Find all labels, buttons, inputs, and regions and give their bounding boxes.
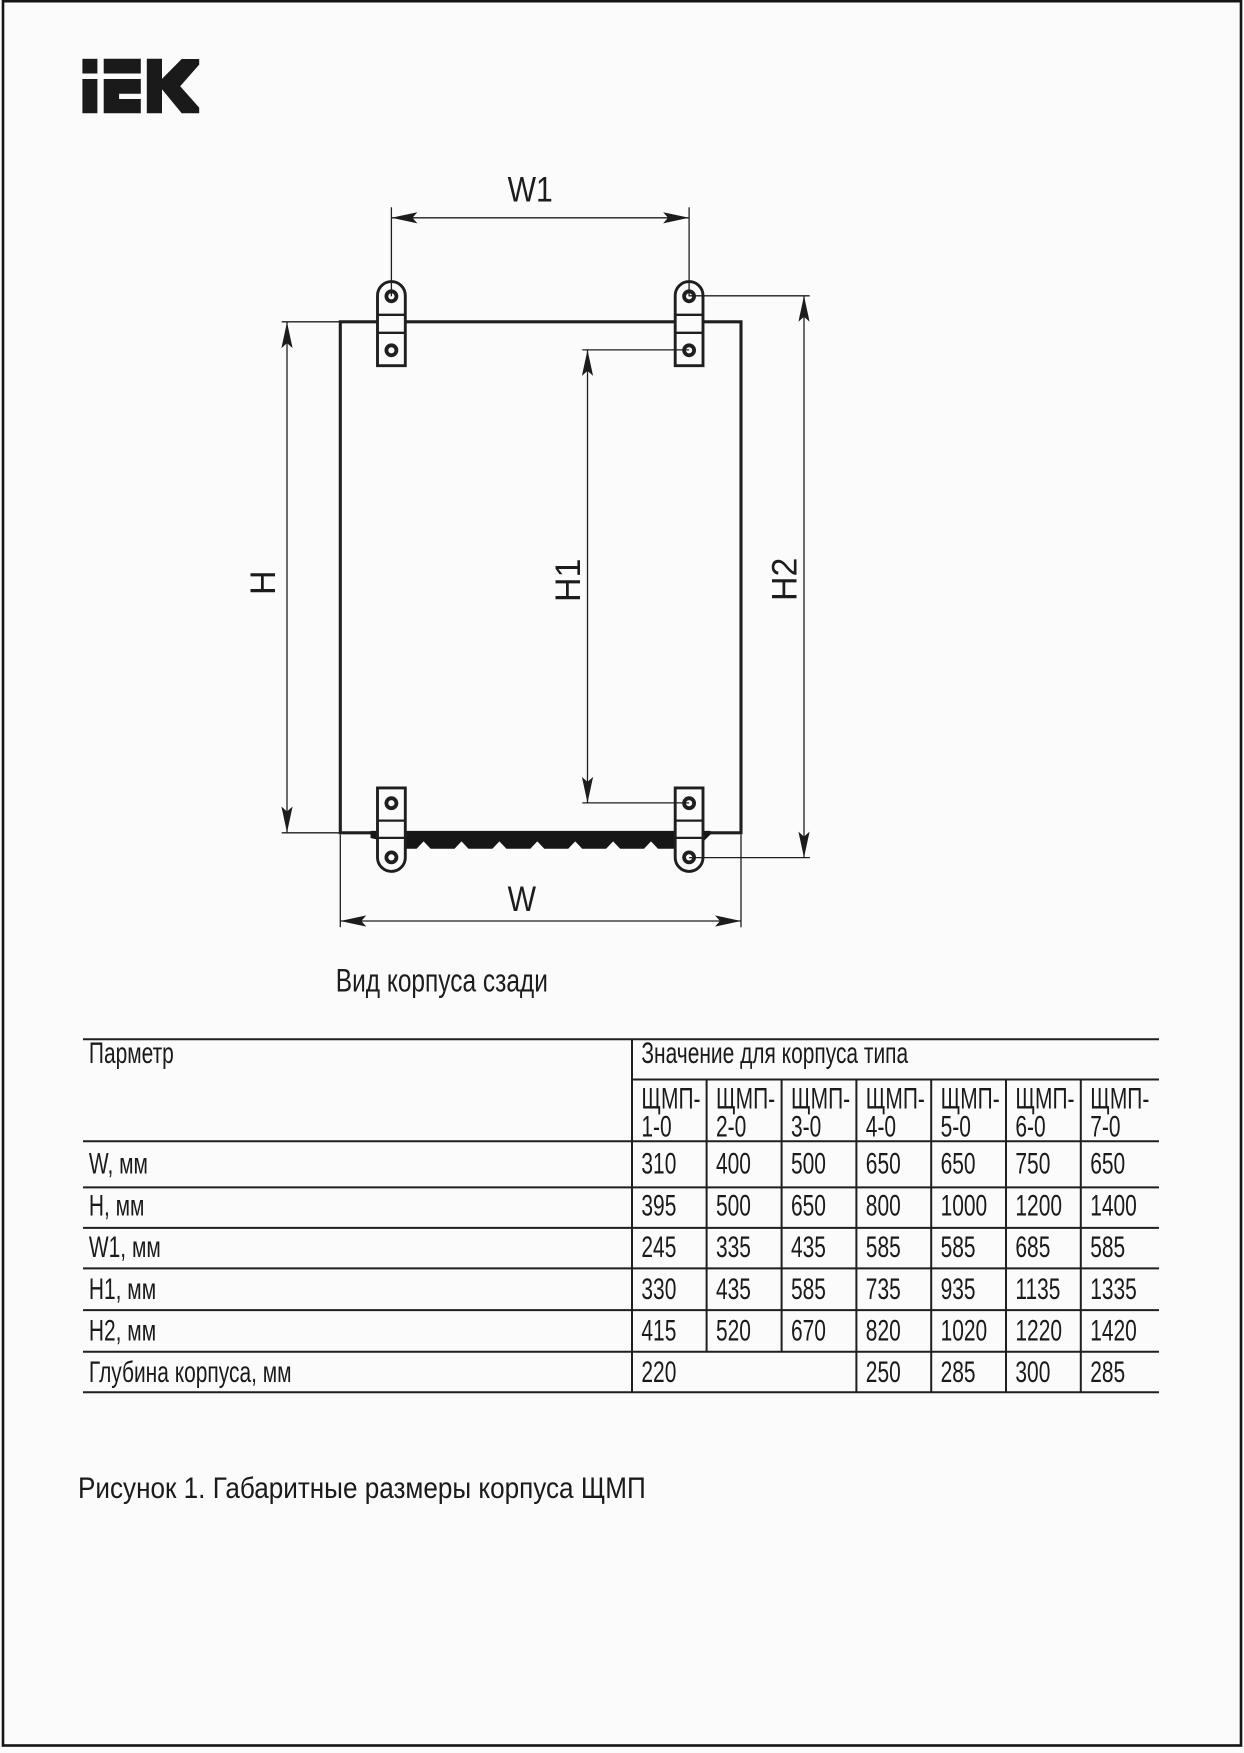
svg-text:800: 800 — [866, 1190, 901, 1222]
svg-text:500: 500 — [791, 1148, 826, 1180]
svg-text:935: 935 — [941, 1273, 976, 1305]
svg-text:Значение для корпуса типа: Значение для корпуса типа — [641, 1038, 908, 1070]
svg-text:650: 650 — [791, 1190, 826, 1222]
svg-text:4-0: 4-0 — [866, 1111, 896, 1143]
svg-text:585: 585 — [1090, 1232, 1125, 1264]
svg-text:7-0: 7-0 — [1090, 1111, 1120, 1143]
svg-text:735: 735 — [866, 1273, 901, 1305]
svg-text:1200: 1200 — [1015, 1190, 1062, 1222]
svg-text:W1: W1 — [508, 169, 553, 209]
svg-text:335: 335 — [716, 1232, 751, 1264]
svg-text:H, мм: H, мм — [89, 1190, 145, 1222]
svg-text:Парметр: Парметр — [89, 1038, 174, 1070]
svg-text:5-0: 5-0 — [941, 1111, 971, 1143]
svg-text:310: 310 — [641, 1148, 676, 1180]
svg-text:245: 245 — [641, 1232, 676, 1264]
svg-text:1220: 1220 — [1015, 1315, 1062, 1347]
svg-text:H: H — [245, 570, 284, 595]
svg-text:415: 415 — [641, 1315, 676, 1347]
svg-text:H2, мм: H2, мм — [89, 1315, 156, 1347]
svg-text:285: 285 — [1090, 1357, 1125, 1389]
svg-text:585: 585 — [866, 1232, 901, 1264]
svg-text:820: 820 — [866, 1315, 901, 1347]
svg-text:400: 400 — [716, 1148, 751, 1180]
svg-text:1400: 1400 — [1090, 1190, 1137, 1222]
svg-text:1420: 1420 — [1090, 1315, 1137, 1347]
svg-text:Вид корпуса сзади: Вид корпуса сзади — [336, 963, 548, 999]
svg-text:3-0: 3-0 — [791, 1111, 821, 1143]
svg-text:6-0: 6-0 — [1015, 1111, 1045, 1143]
svg-text:1135: 1135 — [1015, 1273, 1060, 1305]
svg-text:H1: H1 — [550, 559, 589, 602]
svg-text:1000: 1000 — [941, 1190, 988, 1222]
svg-text:750: 750 — [1015, 1148, 1050, 1180]
svg-text:1335: 1335 — [1090, 1273, 1137, 1305]
svg-text:435: 435 — [716, 1273, 751, 1305]
svg-text:220: 220 — [641, 1357, 676, 1389]
svg-text:W, мм: W, мм — [89, 1148, 148, 1180]
svg-text:W: W — [508, 879, 537, 919]
svg-text:670: 670 — [791, 1315, 826, 1347]
svg-text:H2: H2 — [766, 558, 805, 601]
svg-text:330: 330 — [641, 1273, 676, 1305]
svg-text:650: 650 — [941, 1148, 976, 1180]
svg-text:1020: 1020 — [941, 1315, 988, 1347]
svg-text:650: 650 — [866, 1148, 901, 1180]
svg-text:585: 585 — [941, 1232, 976, 1264]
svg-text:685: 685 — [1015, 1232, 1050, 1264]
svg-text:1-0: 1-0 — [641, 1111, 671, 1143]
svg-text:W1, мм: W1, мм — [89, 1232, 161, 1264]
svg-text:250: 250 — [866, 1357, 901, 1389]
svg-text:H1, мм: H1, мм — [89, 1273, 156, 1305]
svg-text:395: 395 — [641, 1190, 676, 1222]
svg-text:585: 585 — [791, 1273, 826, 1305]
svg-text:Рисунок 1. Габаритные размеры: Рисунок 1. Габаритные размеры корпуса ЩМ… — [78, 1471, 646, 1504]
svg-text:435: 435 — [791, 1232, 826, 1264]
svg-text:520: 520 — [716, 1315, 751, 1347]
svg-text:2-0: 2-0 — [716, 1111, 746, 1143]
svg-text:650: 650 — [1090, 1148, 1125, 1180]
svg-text:285: 285 — [941, 1357, 976, 1389]
svg-text:500: 500 — [716, 1190, 751, 1222]
svg-text:Глубина корпуса, мм: Глубина корпуса, мм — [89, 1357, 292, 1389]
svg-text:300: 300 — [1015, 1357, 1050, 1389]
